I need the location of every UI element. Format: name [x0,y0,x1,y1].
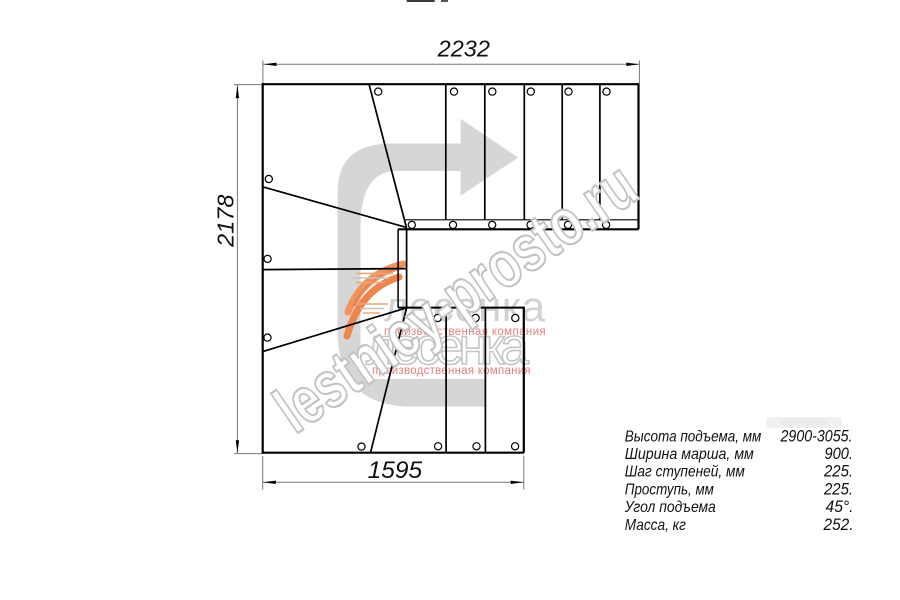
svg-text:2178: 2178 [212,195,238,248]
svg-text:2900-3055.: 2900-3055. [780,426,853,445]
svg-text:Проступь, мм: Проступь, мм [625,481,714,498]
svg-text:225.: 225. [823,462,853,481]
svg-text:2232: 2232 [437,36,490,62]
svg-text:1595: 1595 [368,457,423,484]
svg-text:Шаг ступеней, мм: Шаг ступеней, мм [625,464,745,481]
svg-text:225.: 225. [823,479,853,498]
svg-text:45°.: 45°. [826,497,854,516]
svg-text:900.: 900. [825,444,854,463]
svg-text:Высота подъема, мм: Высота подъема, мм [625,428,762,445]
svg-text:Угол подъема: Угол подъема [624,499,716,516]
svg-text:Ширина марша, мм: Ширина марша, мм [625,446,754,463]
svg-text:Масса, кг: Масса, кг [625,517,686,534]
svg-text:252.: 252. [823,515,854,534]
